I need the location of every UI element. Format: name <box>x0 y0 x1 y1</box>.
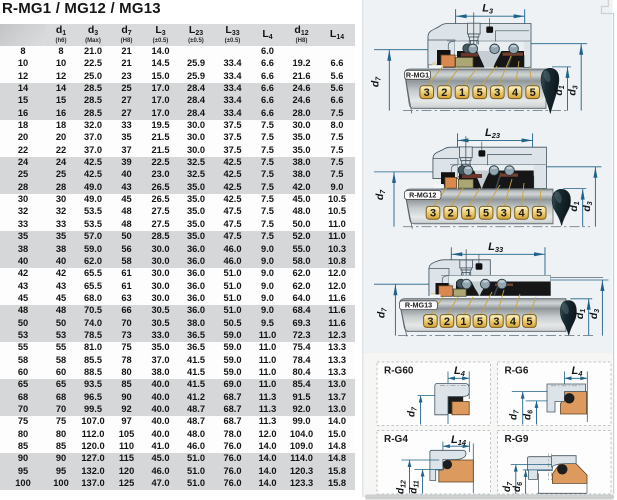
svg-text:5: 5 <box>477 316 483 328</box>
svg-text:4: 4 <box>518 208 525 220</box>
svg-text:1: 1 <box>459 87 465 99</box>
svg-text:5: 5 <box>483 208 489 220</box>
svg-text:5: 5 <box>526 316 532 328</box>
svg-text:2: 2 <box>448 208 454 220</box>
svg-text:1: 1 <box>460 316 466 328</box>
svg-text:5: 5 <box>477 87 483 99</box>
svg-text:3: 3 <box>427 316 433 328</box>
svg-text:R-G9: R-G9 <box>505 434 529 445</box>
svg-text:R-MG1: R-MG1 <box>406 70 429 79</box>
svg-text:5: 5 <box>536 208 542 220</box>
svg-text:2: 2 <box>441 87 447 99</box>
svg-text:R-G4: R-G4 <box>384 434 408 445</box>
svg-text:4: 4 <box>510 316 517 328</box>
svg-text:3: 3 <box>501 208 507 220</box>
svg-text:3: 3 <box>430 208 436 220</box>
svg-text:R-MG12: R-MG12 <box>409 190 436 199</box>
svg-text:4: 4 <box>512 87 519 99</box>
svg-text:3: 3 <box>424 87 430 99</box>
svg-text:5: 5 <box>530 87 536 99</box>
svg-text:2: 2 <box>444 316 450 328</box>
svg-text:3: 3 <box>494 87 500 99</box>
svg-text:3: 3 <box>493 316 499 328</box>
svg-text:R-G60: R-G60 <box>384 366 414 377</box>
svg-text:R-MG13: R-MG13 <box>405 301 432 310</box>
svg-text:1: 1 <box>465 208 471 220</box>
svg-text:R-G6: R-G6 <box>505 366 529 377</box>
